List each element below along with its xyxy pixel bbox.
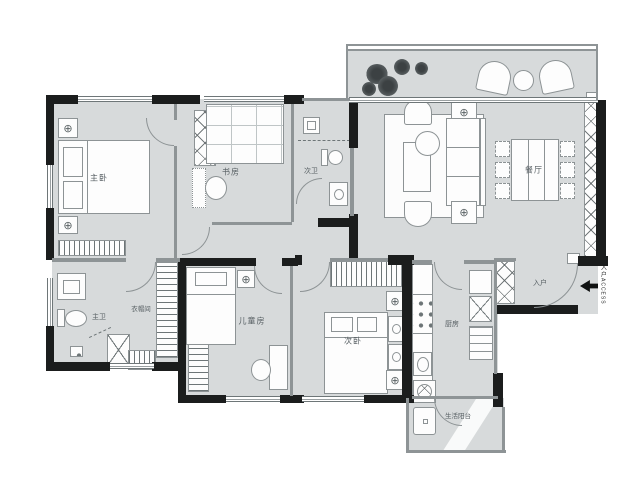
toilet-tank [57, 309, 65, 327]
wall-segment [46, 95, 54, 165]
master-shower-tray [107, 334, 130, 366]
kids-wardrobe [188, 344, 209, 392]
pillow [195, 272, 227, 286]
dining-chair [560, 183, 575, 199]
kids-desk [269, 345, 288, 390]
room-label-second-bath: 次卫 [304, 166, 318, 176]
basin [417, 357, 429, 372]
dining-chair [495, 141, 510, 157]
toilet-tank [321, 149, 328, 166]
plant-icon [362, 82, 376, 96]
water-heater [413, 407, 436, 435]
window [302, 396, 364, 402]
bed-fold-line [187, 294, 235, 295]
wall-segment [349, 100, 358, 148]
partition [502, 407, 505, 452]
partition [156, 258, 180, 262]
room-label-kitchen: 厨房 [445, 319, 459, 329]
study-tatami-bed [206, 104, 284, 164]
sofa [446, 118, 480, 206]
partition [174, 146, 177, 258]
plant-icon [415, 62, 428, 75]
entry-access-label: 入户ACCESS [598, 264, 606, 320]
partition [346, 44, 348, 101]
entry-shoe-cabinet [494, 261, 515, 304]
kitchen-counter-right [469, 326, 493, 360]
room-label-second-bedroom: 次卧 [344, 336, 362, 347]
partition [596, 44, 598, 100]
shower-glass [298, 140, 350, 141]
cloakroom-shelving [156, 262, 178, 358]
partition [52, 258, 126, 262]
partition [350, 148, 354, 216]
window [204, 96, 284, 102]
wall-segment [596, 100, 606, 262]
dining-chair [560, 141, 575, 157]
window [226, 396, 280, 402]
fridge [469, 270, 492, 294]
room-label-cloakroom: 衣帽间 [131, 303, 151, 313]
partition [494, 258, 516, 261]
kitchen-cabinet [469, 296, 492, 322]
floor-plan: ⊕ ⊕ ⊕ ⊕ ⊕ [0, 0, 640, 479]
room-label-dining: 餐厅 [525, 165, 543, 176]
entry-label-en: ACCESS [599, 278, 605, 305]
window [78, 96, 152, 102]
partition [290, 266, 293, 396]
second-bed [324, 312, 388, 394]
window [110, 363, 154, 369]
kitchen-sink [413, 352, 432, 376]
dining-chair [495, 162, 510, 178]
plant-icon [394, 59, 410, 75]
wall-segment [152, 95, 200, 104]
study-chair [205, 176, 227, 200]
basin [334, 189, 344, 200]
toilet-bowl [65, 310, 87, 327]
bed-fold-line [87, 141, 88, 213]
window [47, 165, 53, 208]
ac-unit-icon: ⊕ [237, 270, 255, 288]
window [349, 97, 598, 103]
ac-unit-icon: ⊕ [58, 216, 78, 234]
room-label-master-bedroom: 主卧 [90, 173, 108, 184]
partition [406, 398, 409, 452]
lounge-chair [404, 201, 432, 227]
nightstand [388, 344, 403, 370]
kids-chair [251, 359, 271, 381]
dining-chair [495, 183, 510, 199]
ac-unit-icon: ⊕ [451, 201, 477, 224]
partition [330, 258, 388, 262]
lamp [392, 352, 401, 362]
window [47, 278, 53, 326]
pillow [63, 147, 83, 177]
partition [302, 98, 350, 101]
partition [494, 262, 497, 374]
partition [412, 260, 432, 264]
dining-chair [560, 162, 575, 178]
pillow [357, 317, 377, 332]
sofa-back [480, 118, 486, 206]
washing-machine [413, 380, 436, 403]
wall-segment [46, 362, 110, 371]
second-bath-shower-tray [303, 117, 320, 134]
master-dresser [58, 240, 126, 256]
pillow [63, 181, 83, 209]
partition [212, 222, 292, 225]
balcony-side-table [513, 70, 534, 91]
room-label-master-bath: 主卫 [92, 312, 106, 322]
wall-segment [178, 258, 186, 403]
side-plate [415, 131, 440, 156]
wall-segment [318, 218, 358, 227]
pillow [331, 317, 353, 332]
ac-unit-icon: ⊕ [58, 118, 78, 138]
lamp [392, 324, 401, 334]
wall-segment [46, 208, 54, 260]
wall-segment [178, 395, 226, 403]
room-label-kids-room: 儿童房 [239, 316, 266, 327]
partition [464, 260, 496, 264]
study-desk [192, 168, 206, 208]
shower-drain [307, 121, 316, 130]
partition [406, 450, 506, 453]
basin [63, 280, 80, 294]
plant-icon [378, 76, 398, 96]
room-label-study: 书房 [222, 167, 240, 178]
wall-segment [493, 373, 503, 407]
kids-bed [186, 267, 236, 345]
wall-segment [280, 395, 304, 403]
toilet-bowl [328, 150, 343, 165]
partition [291, 104, 294, 222]
wall-segment [402, 255, 412, 403]
master-bath-vanity [57, 273, 86, 300]
wall-segment [186, 258, 256, 266]
wall-segment [284, 95, 304, 104]
nightstand [388, 316, 403, 342]
second-bath-vanity [329, 182, 348, 206]
partition [174, 104, 177, 120]
stove-icon [412, 294, 433, 334]
shower-head-icon [70, 346, 83, 357]
partition [346, 44, 598, 46]
partition [346, 49, 598, 51]
heater-dial [423, 419, 428, 424]
entry-label-cn: 入户 [599, 264, 605, 278]
